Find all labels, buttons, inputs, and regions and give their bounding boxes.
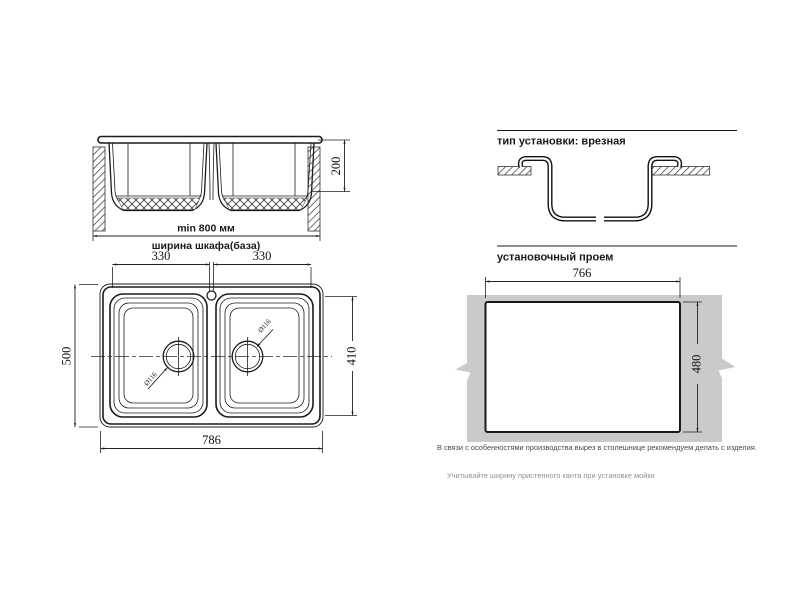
drawing-svg: 200 min 800 мм ширина шкафа(база) Ø116 bbox=[0, 0, 800, 600]
left-bowl-slope-2 bbox=[119, 303, 198, 408]
overall-width-value: 786 bbox=[202, 433, 221, 447]
faucet-hole bbox=[207, 291, 216, 300]
countertop-section-left bbox=[498, 167, 531, 176]
right-bowl-opening bbox=[216, 294, 313, 417]
left-drain-diameter-label: Ø116 bbox=[143, 370, 160, 387]
sink-rim-edge bbox=[103, 287, 320, 424]
overall-depth-value: 500 bbox=[59, 347, 73, 366]
cutout-rect bbox=[486, 302, 681, 432]
top-view: Ø116 Ø116 330 330 500 410 786 bbox=[59, 249, 358, 453]
opening-title: установочный проем bbox=[497, 252, 613, 264]
cabinet-wall-left bbox=[93, 147, 105, 231]
sink-outer-edge bbox=[100, 284, 323, 427]
note-production: В связи с особенностями производства выр… bbox=[437, 443, 757, 452]
left-bowl-opening bbox=[110, 294, 207, 417]
note-wall-edge: Учитывайте ширину пристенного канта при … bbox=[447, 471, 655, 480]
bowls-depth-value: 410 bbox=[344, 347, 358, 366]
rim-profile-left-core bbox=[520, 159, 596, 220]
left-bowl-floor bbox=[124, 308, 193, 403]
rim-profile-left-outline bbox=[520, 159, 596, 220]
cabinet-min-width-label: min 800 мм bbox=[177, 223, 235, 235]
sink-installation-drawing: 200 min 800 мм ширина шкафа(база) Ø116 bbox=[0, 0, 800, 600]
installation-opening: установочный проем 766 480 В связи с осо… bbox=[437, 246, 757, 480]
countertop-section-right bbox=[652, 167, 710, 176]
sink-rim-section bbox=[98, 137, 322, 144]
left-bowl-width-value: 330 bbox=[152, 249, 171, 263]
right-bowl-bottom-hatch bbox=[224, 198, 307, 210]
cutout-width-value: 766 bbox=[573, 266, 592, 280]
depth-dim-value: 200 bbox=[329, 157, 343, 176]
mount-type-title: тип установки: врезная bbox=[497, 136, 626, 148]
left-bowl-bottom-hatch bbox=[117, 198, 200, 210]
front-section-view: 200 min 800 мм ширина шкафа(база) bbox=[93, 137, 350, 253]
left-bowl-slope-1 bbox=[114, 298, 203, 413]
mount-type-detail: тип установки: врезная bbox=[497, 131, 737, 220]
divider-left-line bbox=[209, 143, 210, 200]
right-bowl-slope-1 bbox=[220, 298, 309, 413]
cutout-depth-value: 480 bbox=[689, 355, 703, 374]
right-bowl-width-value: 330 bbox=[253, 249, 272, 263]
divider-right-line bbox=[213, 143, 214, 200]
